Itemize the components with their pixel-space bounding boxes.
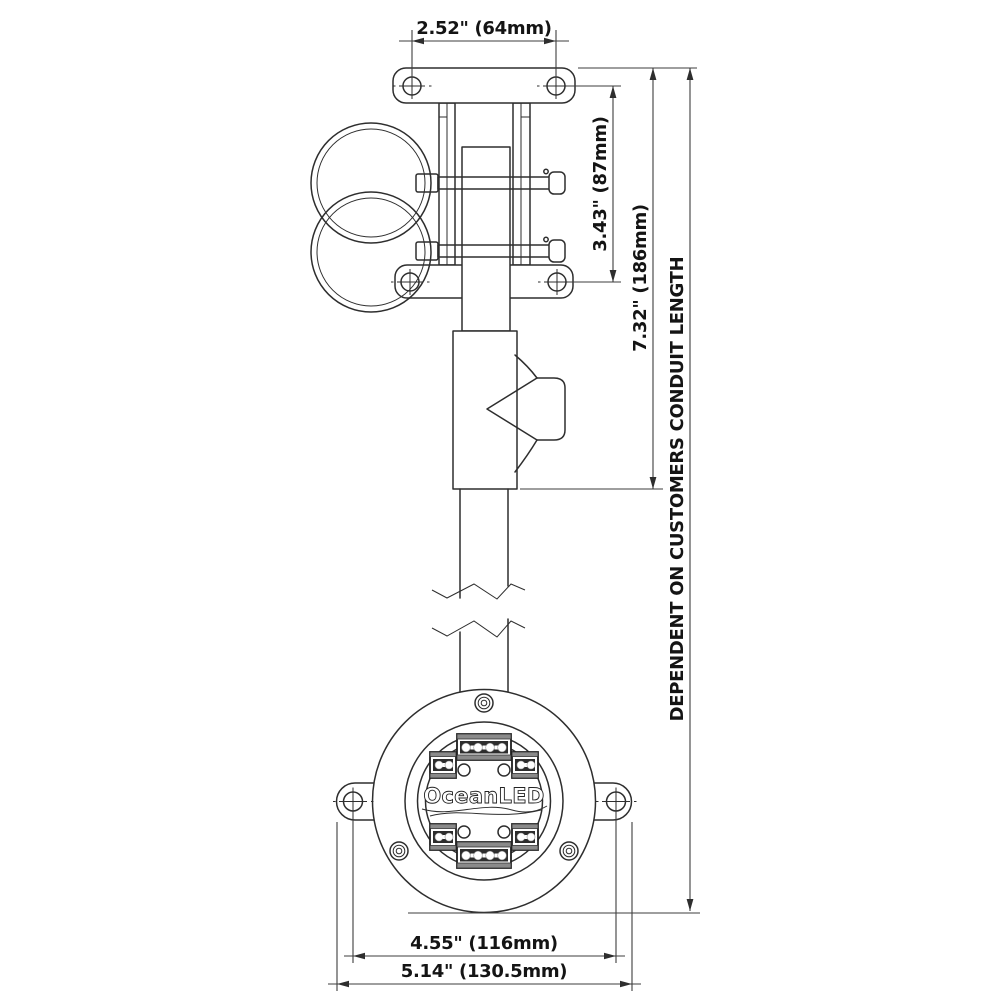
dim-label-bracket-total-height: 7.32" (186mm) (630, 204, 651, 352)
dim-label-fixture-overall-width: 5.14" (130.5mm) (401, 961, 567, 982)
led-module-top-center (457, 734, 511, 760)
led-module-bottom-right (512, 824, 538, 850)
break-symbol-lower (432, 621, 525, 637)
mounting-bracket (311, 68, 577, 331)
conduit-tee (453, 331, 565, 489)
oceanled-logo: OceanLED (423, 784, 544, 808)
technical-drawing-page: OceanLED 2.52" (64mm) 3.43" (87mm) (0, 0, 1000, 1000)
led-module-top-left (430, 752, 456, 778)
dim-label-fixture-hole-spacing: 4.55" (116mm) (410, 933, 558, 954)
led-module-top-right (512, 752, 538, 778)
dim-label-clamp-hole-spacing: 3.43" (87mm) (590, 116, 611, 251)
conduit-with-break (432, 489, 525, 692)
light-fixture: OceanLED (333, 690, 637, 913)
dim-label-top-hole-spacing: 2.52" (64mm) (416, 18, 551, 39)
dimension-clamp-hole-spacing: 3.43" (87mm) (567, 86, 621, 282)
bracket-center-tube (462, 147, 510, 331)
led-module-bottom-center (457, 842, 511, 868)
dim-label-conduit-note: DEPENDENT ON CUSTOMERS CONDUIT LENGTH (667, 257, 688, 722)
led-module-bottom-left (430, 824, 456, 850)
break-symbol-upper (432, 584, 525, 599)
oceanled-conduit-mount-drawing: OceanLED 2.52" (64mm) 3.43" (87mm) (0, 0, 1000, 1000)
